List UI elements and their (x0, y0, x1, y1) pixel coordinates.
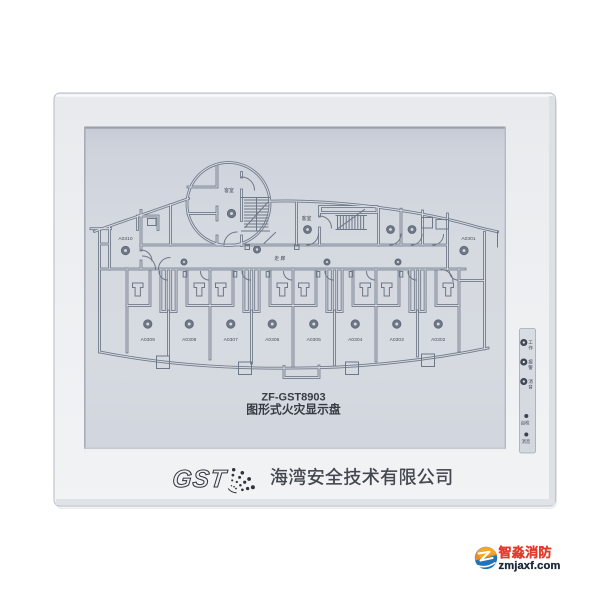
svg-text:走廊: 走廊 (274, 255, 287, 262)
svg-text:zmjaxf.com: zmjaxf.com (499, 560, 561, 572)
svg-text:GST: GST (171, 466, 229, 493)
svg-text:A0303: A0303 (390, 337, 404, 343)
svg-text:消音: 消音 (522, 438, 531, 445)
svg-text:A0309: A0309 (141, 337, 155, 343)
svg-text:作: 作 (528, 344, 533, 351)
svg-text:海湾安全技术有限公司: 海湾安全技术有限公司 (270, 468, 454, 488)
svg-text:A0307: A0307 (224, 337, 238, 343)
svg-text:A0305: A0305 (307, 337, 321, 343)
svg-text:客室: 客室 (302, 215, 312, 222)
svg-text:图形式火灾显示盘: 图形式火灾显示盘 (246, 403, 341, 417)
svg-text:A0302: A0302 (431, 337, 445, 343)
svg-text:智淼消防: 智淼消防 (499, 544, 552, 560)
svg-text:客室: 客室 (224, 187, 234, 194)
svg-text:音: 音 (528, 383, 533, 390)
svg-text:A0304: A0304 (348, 337, 362, 343)
svg-text:A0310: A0310 (118, 236, 132, 242)
svg-text:自检: 自检 (521, 420, 530, 427)
svg-text:A0301: A0301 (461, 236, 475, 242)
svg-text:A0308: A0308 (182, 337, 196, 343)
svg-text:警: 警 (528, 364, 533, 371)
svg-text:A0306: A0306 (265, 337, 279, 343)
